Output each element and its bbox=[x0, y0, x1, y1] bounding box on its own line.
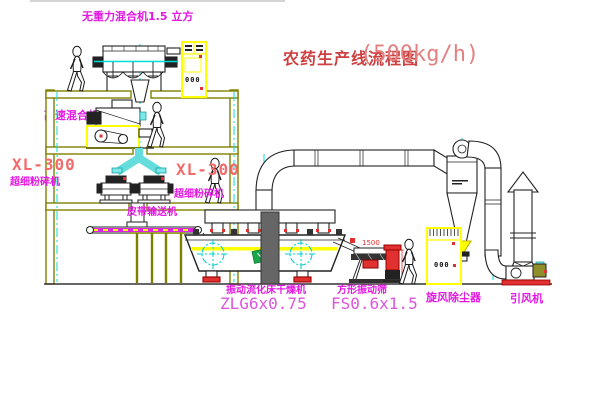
label-induced-fan: 引风机 bbox=[510, 293, 543, 304]
main-duct bbox=[294, 150, 449, 175]
label-pulverizer-left-name: 超细粉碎机 bbox=[10, 178, 60, 188]
induced-draft-fan bbox=[502, 262, 550, 285]
high-speed-mixer bbox=[86, 100, 154, 148]
discharge-machine bbox=[383, 245, 402, 281]
cabinet-right-marks: 000 bbox=[434, 262, 450, 269]
pulverizer-left bbox=[97, 168, 135, 203]
label-screen-model: FS0.6x1.5 bbox=[331, 296, 418, 312]
label-dimension-1500: 1500 bbox=[362, 240, 380, 247]
diagram-capacity: (500kg/h) bbox=[360, 44, 479, 66]
person-roof bbox=[68, 46, 85, 91]
label-gravity-mixer: 无重力混合机1.5 立方 bbox=[82, 11, 193, 22]
label-belt-conveyor: 皮带输送机 bbox=[127, 208, 177, 218]
label-dryer-model: ZLG6x0.75 bbox=[220, 296, 307, 312]
cabinet-top-marks: 000 bbox=[185, 77, 201, 84]
pulverizer-right bbox=[135, 168, 173, 203]
exhaust-elbow-duct bbox=[256, 150, 296, 212]
label-pulverizer-right-model: XL-300 bbox=[176, 162, 240, 178]
exhaust-stack bbox=[508, 172, 538, 272]
label-pulverizer-right-name: 超细粉碎机 bbox=[174, 190, 224, 200]
control-cabinet-top bbox=[182, 42, 206, 97]
support-column bbox=[261, 212, 279, 284]
label-cyclone: 旋风除尘器 bbox=[426, 292, 481, 303]
diagram-canvas: 无重力混合机1.5 立方 农药生产线流程图 (500kg/h) 高速混合机3立方… bbox=[0, 0, 600, 403]
control-cabinet-right bbox=[427, 228, 461, 284]
label-pulverizer-left-model: XL-300 bbox=[12, 157, 76, 173]
person-ground bbox=[400, 239, 417, 284]
person-floor2 bbox=[148, 102, 165, 147]
